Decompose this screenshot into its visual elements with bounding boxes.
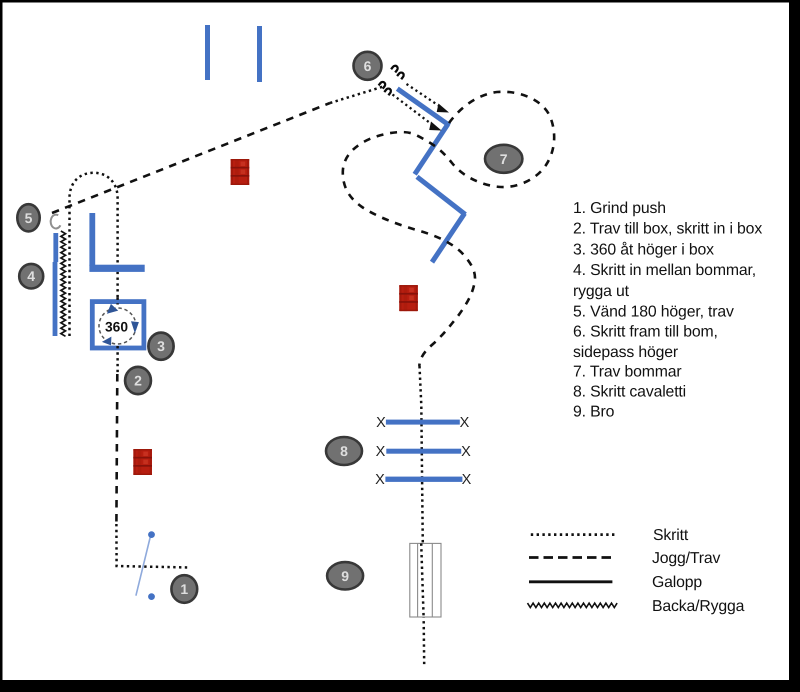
svg-text:X: X (376, 444, 386, 460)
svg-text:sidepass höger: sidepass höger (573, 344, 678, 361)
svg-text:Skritt: Skritt (653, 527, 689, 544)
svg-text:2. Trav till box, skritt in i: 2. Trav till box, skritt in i box (573, 221, 762, 238)
svg-text:X: X (376, 415, 386, 431)
svg-text:3: 3 (157, 338, 165, 354)
svg-text:Galopp: Galopp (652, 574, 702, 591)
svg-text:5: 5 (25, 210, 33, 226)
svg-text:Backa/Rygga: Backa/Rygga (652, 598, 745, 615)
svg-text:1. Grind push: 1. Grind push (573, 200, 666, 217)
svg-text:8. Skritt cavaletti: 8. Skritt cavaletti (573, 384, 686, 401)
svg-text:7. Trav bommar: 7. Trav bommar (573, 363, 682, 380)
svg-text:X: X (461, 444, 471, 460)
svg-text:6. Skritt fram till bom,: 6. Skritt fram till bom, (573, 324, 718, 341)
svg-text:X: X (462, 472, 472, 488)
svg-text:3. 360 åt höger i box: 3. 360 åt höger i box (573, 241, 714, 258)
svg-text:2: 2 (134, 373, 142, 389)
svg-text:360: 360 (105, 320, 128, 335)
svg-text:7: 7 (500, 151, 508, 167)
svg-text:X: X (375, 472, 385, 488)
svg-text:6: 6 (364, 58, 372, 74)
svg-text:1: 1 (180, 581, 188, 597)
svg-text:9. Bro: 9. Bro (573, 404, 615, 421)
svg-text:rygga ut: rygga ut (573, 283, 630, 300)
svg-text:8: 8 (340, 443, 348, 459)
svg-text:9: 9 (341, 568, 349, 584)
svg-text:5. Vänd 180 höger, trav: 5. Vänd 180 höger, trav (573, 304, 734, 321)
svg-text:Jogg/Trav: Jogg/Trav (652, 550, 721, 567)
svg-text:X: X (460, 415, 470, 431)
svg-text:4. Skritt in mellan bommar,: 4. Skritt in mellan bommar, (573, 262, 756, 279)
svg-text:4: 4 (27, 268, 35, 284)
